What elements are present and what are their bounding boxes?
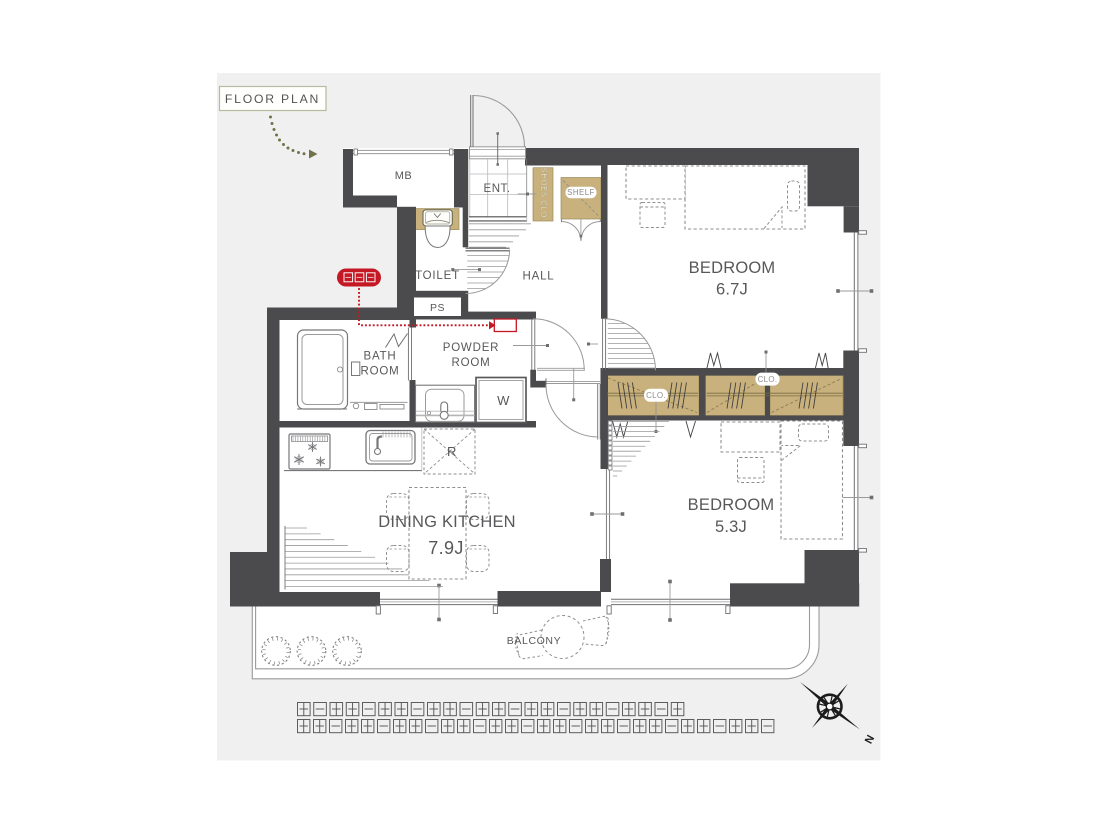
svg-text:R: R	[447, 444, 457, 459]
svg-text:BEDROOM: BEDROOM	[688, 496, 775, 514]
svg-text:POWDER: POWDER	[443, 342, 500, 354]
svg-text:CLO.: CLO.	[646, 391, 666, 400]
svg-text:6.7J: 6.7J	[716, 281, 748, 299]
svg-text:ROOM: ROOM	[361, 366, 400, 378]
svg-text:CLO.: CLO.	[758, 375, 778, 384]
svg-text:BEDROOM: BEDROOM	[689, 259, 776, 277]
svg-text:ENT.: ENT.	[484, 183, 511, 195]
svg-text:HALL: HALL	[523, 271, 555, 283]
svg-text:MB: MB	[395, 170, 413, 182]
svg-text:SHELF: SHELF	[567, 188, 595, 197]
svg-text:7.9J: 7.9J	[428, 538, 464, 558]
svg-text:PS: PS	[430, 302, 445, 314]
svg-text:ROOM: ROOM	[452, 357, 491, 369]
svg-text:BATH: BATH	[363, 351, 396, 363]
svg-text:BALCONY: BALCONY	[507, 635, 561, 647]
svg-text:DINING KITCHEN: DINING KITCHEN	[378, 513, 516, 531]
svg-text:FLOOR PLAN: FLOOR PLAN	[225, 92, 320, 106]
svg-text:SHOES CLO.: SHOES CLO.	[539, 168, 548, 221]
svg-text:W: W	[497, 393, 510, 408]
svg-text:TOILET: TOILET	[415, 270, 460, 282]
svg-text:5.3J: 5.3J	[715, 518, 747, 536]
